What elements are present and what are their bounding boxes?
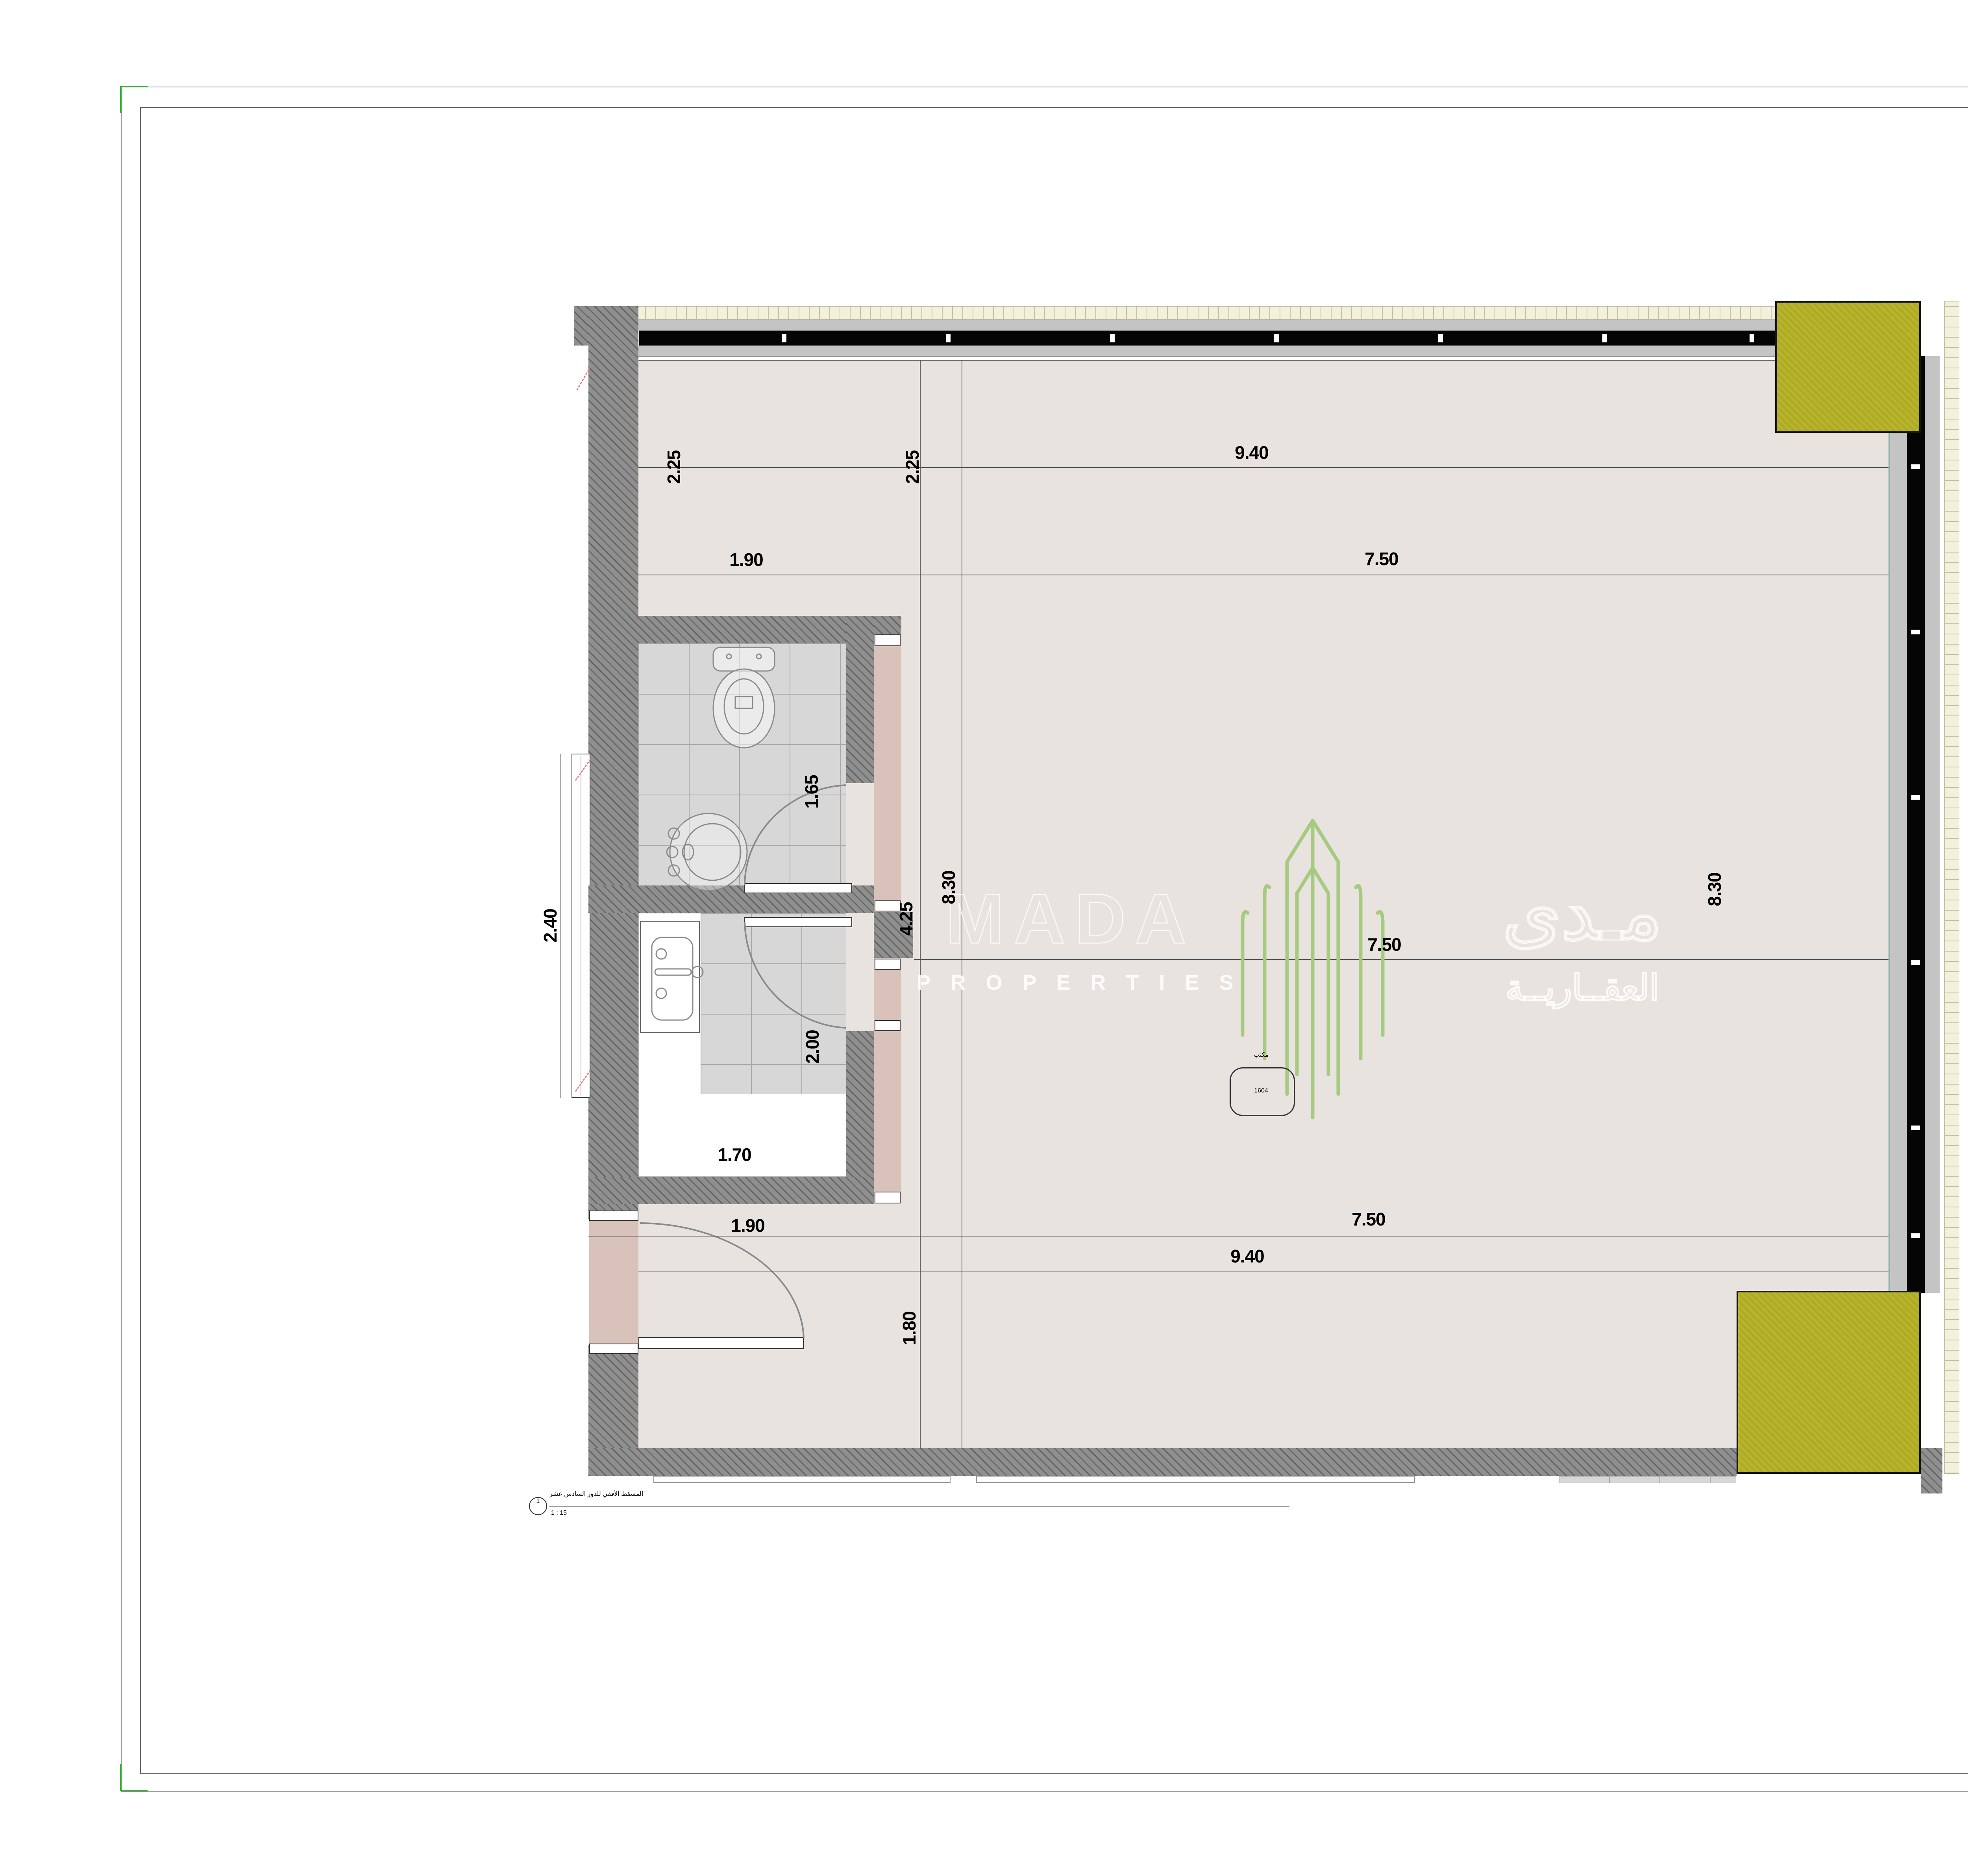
watermark-mada: MADA	[945, 878, 1196, 960]
dim-label: 2.40	[540, 909, 561, 943]
dim-label: 1.70	[718, 1144, 751, 1165]
dim-label: 8.30	[938, 871, 959, 904]
dim-label: 1.80	[899, 1311, 920, 1345]
dim-label: 7.50	[1367, 934, 1401, 955]
dim-line	[638, 1272, 1888, 1272]
view-title-underline	[549, 1506, 1289, 1507]
dim-label: 2.00	[802, 1030, 823, 1064]
adjacent-unit-sliver	[976, 1476, 1415, 1483]
view-number-circle: 1	[529, 1497, 547, 1515]
view-title: المسقط الأفقي للدور السادس عشر	[549, 1490, 652, 1498]
dim-label: 9.40	[1230, 1246, 1264, 1267]
dim-label: 7.50	[1352, 1209, 1385, 1230]
dim-label: 2.25	[902, 450, 923, 484]
dim-label: 1.65	[801, 775, 822, 809]
adjacent-unit-sliver	[1559, 1476, 1736, 1483]
adjacent-unit-sliver	[653, 1476, 951, 1483]
room-number: 1604	[1254, 1087, 1268, 1094]
dim-label: 1.90	[731, 1215, 765, 1236]
dim-line	[638, 575, 1888, 575]
watermark-properties: P R O P E R T I E S	[916, 970, 1240, 995]
dim-label: 2.25	[663, 450, 684, 484]
dim-line	[638, 467, 1888, 468]
dim-line	[588, 1236, 1888, 1236]
room-label: مكتب	[1254, 1051, 1269, 1059]
dim-label: 4.25	[895, 902, 917, 936]
drawing-sheet: MADA P R O P E R T I E S مـدى العقــاريـ…	[0, 0, 1968, 1876]
grid-line	[920, 360, 921, 1448]
dim-label: 9.40	[1235, 442, 1269, 463]
view-scale: 1 : 15	[551, 1510, 567, 1517]
dim-label: 1.90	[729, 549, 763, 570]
watermark-aqaria-ar: العقــاريــة	[1505, 967, 1659, 1009]
dim-label: 8.30	[1704, 872, 1725, 906]
watermark-mada-ar: مـدى	[1502, 870, 1662, 957]
dim-label: 7.50	[1365, 548, 1398, 569]
